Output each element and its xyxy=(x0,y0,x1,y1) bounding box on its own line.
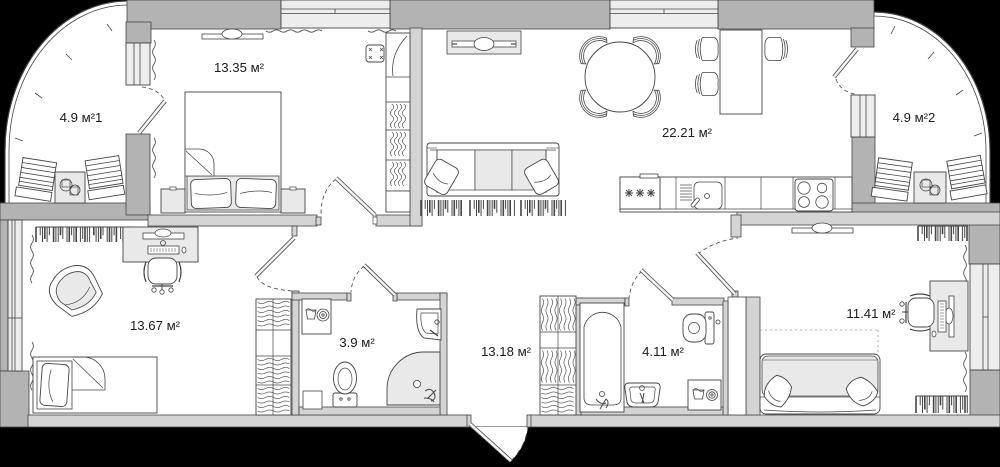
svg-text:13.35 м²: 13.35 м² xyxy=(214,60,265,75)
svg-text:11.41 м²: 11.41 м² xyxy=(846,306,896,321)
svg-text:13.18 м²: 13.18 м² xyxy=(481,344,532,359)
svg-text:3.9 м²: 3.9 м² xyxy=(339,335,375,350)
svg-text:13.67 м²: 13.67 м² xyxy=(130,318,181,333)
svg-text:4.11 м²: 4.11 м² xyxy=(642,344,684,359)
svg-text:22.21 м²: 22.21 м² xyxy=(662,125,713,140)
svg-text:4.9 м²2: 4.9 м²2 xyxy=(893,110,936,125)
svg-text:4.9 м²1: 4.9 м²1 xyxy=(60,110,103,125)
